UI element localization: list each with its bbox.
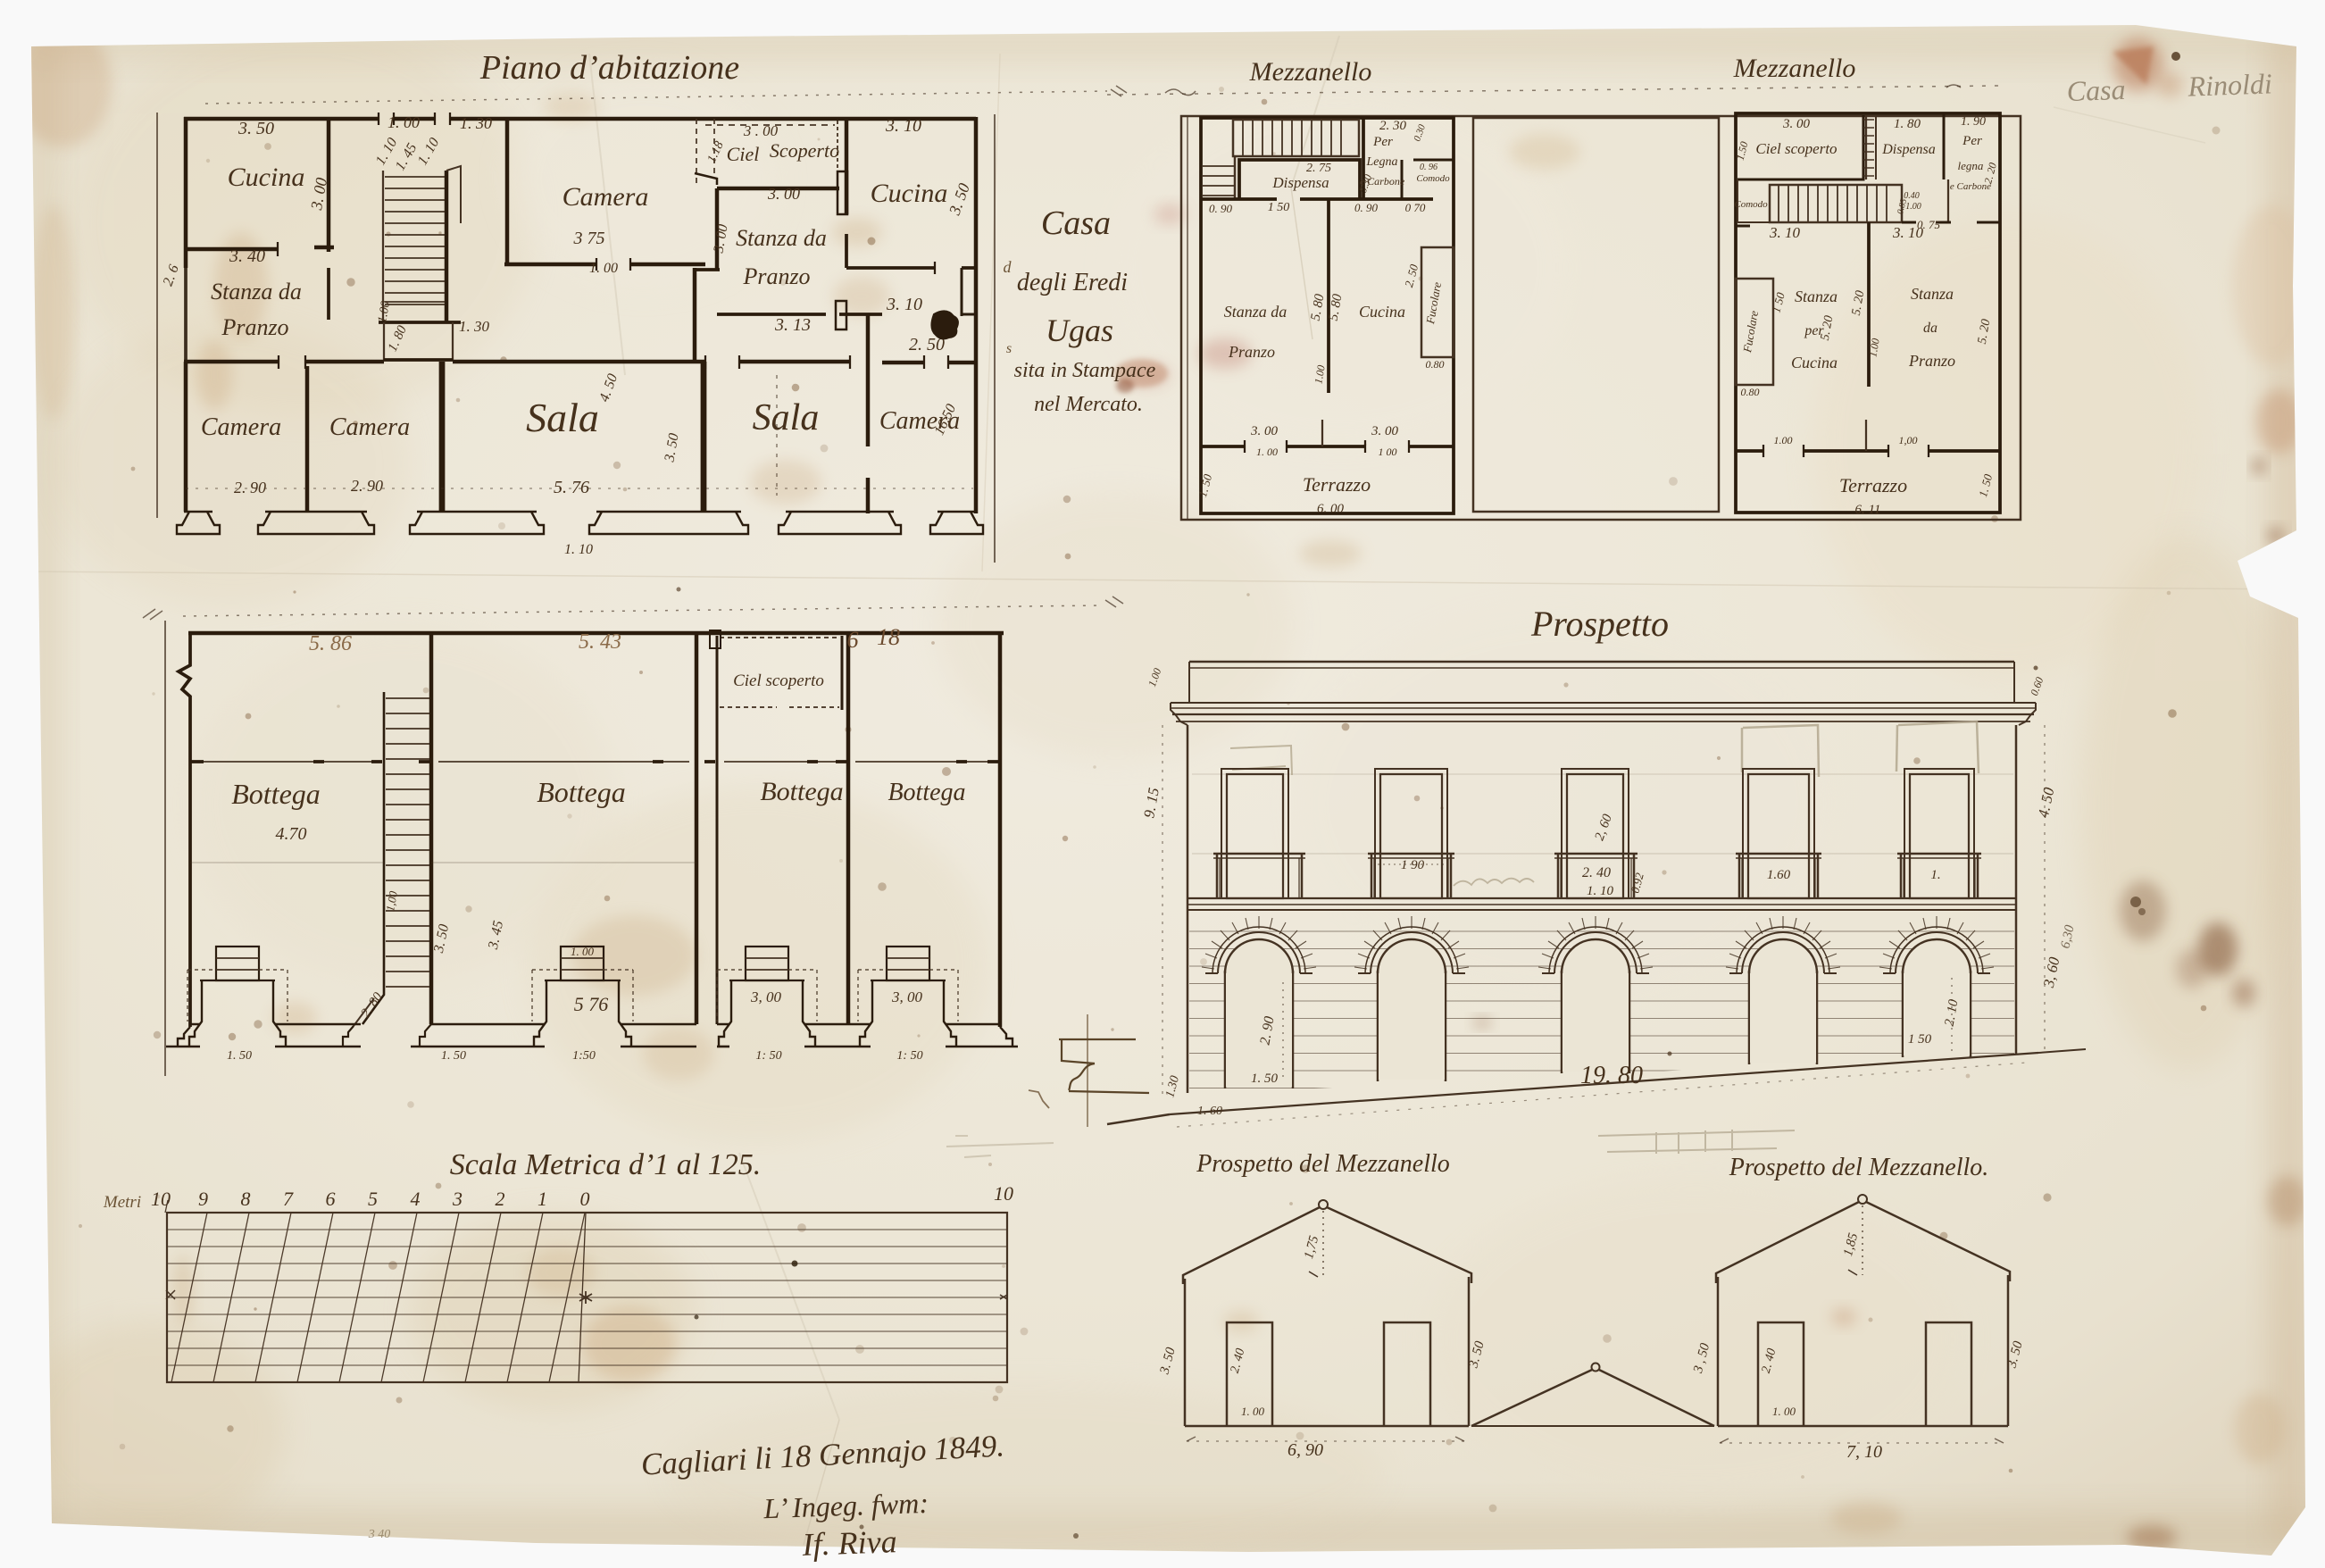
svg-text:1. 50: 1. 50 [441, 1049, 466, 1063]
svg-text:1. 30: 1. 30 [459, 318, 490, 335]
svg-text:5. 86: 5. 86 [309, 632, 352, 655]
svg-text:3. 00: 3. 00 [1250, 424, 1279, 438]
svg-text:3 40: 3 40 [368, 1528, 391, 1541]
svg-text:Prospetto del Mezzanello: Prospetto del Mezzanello [1196, 1150, 1450, 1178]
svg-text:Scoperto: Scoperto [770, 139, 839, 162]
svg-text:Bottega: Bottega [760, 777, 843, 806]
svg-text:Bottega: Bottega [887, 779, 965, 806]
svg-text:1. 50: 1. 50 [1251, 1072, 1279, 1086]
svg-text:18: 18 [877, 624, 900, 650]
svg-text:2. 75: 2. 75 [1306, 162, 1331, 175]
svg-text:Stanza: Stanza [1911, 285, 1954, 303]
svg-text:3. 10: 3. 10 [1892, 224, 1924, 241]
svg-text:1. 10: 1. 10 [564, 542, 593, 557]
svg-text:s: s [1006, 341, 1012, 356]
svg-text:3. 10: 3. 10 [885, 116, 921, 136]
svg-text:Terrazzo: Terrazzo [1303, 473, 1371, 496]
svg-text:1.60: 1.60 [1767, 868, 1791, 882]
svg-text:1. 00: 1. 00 [1241, 1405, 1265, 1418]
svg-text:3. 10: 3. 10 [1769, 224, 1801, 241]
svg-text:1:50: 1:50 [572, 1049, 596, 1063]
svg-text:2: 2 [496, 1188, 505, 1210]
svg-text:6. 11: 6. 11 [1855, 503, 1881, 517]
svg-text:1 00: 1 00 [1379, 446, 1397, 458]
svg-text:Sala: Sala [753, 397, 820, 438]
svg-text:1 50: 1 50 [1268, 201, 1290, 214]
svg-text:3, 00: 3, 00 [750, 988, 782, 1005]
svg-text:3. 00: 3. 00 [1782, 117, 1811, 131]
svg-text:Cucina: Cucina [1791, 354, 1837, 371]
svg-text:0.80: 0.80 [1741, 386, 1760, 398]
svg-text:1. 00: 1. 00 [589, 261, 618, 276]
svg-text:Legna: Legna [1366, 155, 1398, 169]
svg-text:Camera: Camera [562, 182, 649, 212]
svg-text:0.40: 0.40 [1904, 191, 1920, 201]
svg-text:Camera: Camera [201, 413, 281, 441]
svg-text:Prospetto del Mezzanello.: Prospetto del Mezzanello. [1729, 1154, 1989, 1181]
svg-text:L’ Ingeg. fwm:: L’ Ingeg. fwm: [762, 1487, 929, 1524]
svg-text:Cucina: Cucina [228, 163, 305, 192]
svg-text:19. 80: 19. 80 [1580, 1062, 1643, 1089]
svg-text:If. Riva: If. Riva [801, 1523, 897, 1563]
svg-text:degli Eredi: degli Eredi [1017, 269, 1128, 296]
svg-text:1. 00: 1. 00 [571, 945, 595, 958]
svg-text:Prospetto: Prospetto [1530, 604, 1669, 644]
svg-text:Cucina: Cucina [1359, 303, 1405, 321]
svg-text:2. 30: 2. 30 [1379, 119, 1407, 133]
svg-text:Ciel scoperto: Ciel scoperto [733, 671, 824, 690]
svg-text:5 76: 5 76 [574, 993, 609, 1015]
svg-text:8: 8 [241, 1188, 251, 1210]
svg-text:Pranzo: Pranzo [1908, 352, 1955, 370]
svg-text:10: 10 [151, 1188, 171, 1210]
svg-text:1 90: 1 90 [1401, 858, 1425, 872]
svg-text:Pranzo: Pranzo [1228, 343, 1275, 361]
svg-text:0 70: 0 70 [1405, 201, 1426, 214]
svg-text:6: 6 [847, 627, 859, 653]
svg-text:Bottega: Bottega [537, 776, 626, 808]
svg-text:2. 90: 2. 90 [234, 479, 266, 496]
svg-text:3 . 00: 3 . 00 [743, 122, 779, 139]
svg-text:Scala Metrica d’1 al 125.: Scala Metrica d’1 al 125. [450, 1148, 761, 1181]
svg-text:Stanza da: Stanza da [211, 279, 302, 304]
svg-text:3. 10: 3. 10 [886, 295, 922, 314]
svg-text:1. 00: 1. 00 [387, 113, 420, 131]
svg-text:9: 9 [198, 1188, 208, 1210]
svg-text:Mezzanello: Mezzanello [1733, 54, 1856, 83]
svg-text:0: 0 [580, 1188, 590, 1210]
svg-text:5. 76: 5. 76 [554, 478, 589, 497]
svg-text:1.00: 1.00 [1774, 434, 1793, 446]
svg-text:Dispensa: Dispensa [1271, 174, 1329, 191]
svg-text:Cucina: Cucina [871, 179, 948, 208]
svg-text:7: 7 [283, 1188, 294, 1210]
svg-text:1. 10: 1. 10 [1587, 884, 1614, 898]
svg-text:Casa: Casa [1041, 204, 1111, 242]
svg-text:4: 4 [411, 1188, 421, 1210]
svg-text:3. 00: 3. 00 [1371, 424, 1399, 438]
svg-text:d: d [1004, 258, 1012, 276]
svg-text:0. 96: 0. 96 [1420, 163, 1437, 172]
svg-text:Stanza da: Stanza da [1224, 303, 1287, 321]
svg-text:1. 50: 1. 50 [227, 1049, 252, 1063]
svg-text:1. 00: 1. 00 [1772, 1405, 1796, 1418]
svg-text:Ciel: Ciel [727, 143, 760, 165]
svg-text:Comodo: Comodo [1734, 199, 1768, 210]
svg-text:Sala: Sala [526, 395, 599, 440]
svg-text:5. 43: 5. 43 [579, 630, 621, 654]
svg-text:5: 5 [368, 1188, 378, 1210]
svg-text:Rinoldi: Rinoldi [2187, 67, 2272, 102]
svg-text:1. 30: 1. 30 [460, 114, 492, 132]
svg-text:7, 10: 7, 10 [1846, 1442, 1882, 1462]
svg-text:2. 40: 2. 40 [1582, 865, 1611, 880]
svg-text:Per: Per [1962, 134, 1982, 148]
svg-text:10: 10 [994, 1182, 1013, 1205]
svg-text:3 75: 3 75 [573, 229, 605, 248]
svg-text:e Carbone: e Carbone [1360, 175, 1405, 188]
svg-text:Ciel scoperto: Ciel scoperto [1755, 140, 1837, 157]
svg-text:1. 90: 1. 90 [1961, 115, 1986, 129]
svg-text:3. 50: 3. 50 [237, 119, 274, 138]
svg-text:0. 90: 0. 90 [1209, 202, 1233, 215]
svg-text:legna: legna [1958, 159, 1984, 172]
svg-text:1: 50: 1: 50 [755, 1049, 781, 1063]
svg-text:Ugas: Ugas [1046, 313, 1113, 348]
svg-text:Comodo: Comodo [1416, 173, 1450, 184]
svg-text:Camera: Camera [329, 413, 410, 441]
svg-text:Dispensa: Dispensa [1881, 142, 1936, 157]
svg-text:Mezzanello: Mezzanello [1249, 57, 1372, 87]
svg-text:Stanza da: Stanza da [736, 225, 827, 251]
svg-text:0.80: 0.80 [1426, 358, 1445, 371]
svg-text:1: 1 [537, 1188, 547, 1210]
svg-text:1. 80: 1. 80 [1894, 117, 1921, 131]
svg-text:3. 13: 3. 13 [774, 315, 811, 335]
svg-text:6: 6 [326, 1188, 336, 1210]
svg-text:2. 90: 2. 90 [351, 477, 383, 495]
svg-text:Pranzo: Pranzo [742, 263, 810, 289]
svg-text:Metri: Metri [103, 1193, 141, 1212]
svg-text:6. 00: 6. 00 [1317, 502, 1345, 516]
svg-text:Pranzo: Pranzo [221, 314, 288, 340]
svg-text:1,00: 1,00 [1899, 434, 1918, 446]
svg-text:3. 40: 3. 40 [229, 246, 265, 266]
svg-text:sita in Stampace: sita in Stampace [1014, 359, 1156, 382]
svg-text:1: 50: 1: 50 [896, 1049, 922, 1063]
svg-text:3: 3 [452, 1188, 462, 1210]
svg-text:0. 90: 0. 90 [1354, 201, 1379, 214]
svg-text:4.70: 4.70 [276, 824, 307, 844]
svg-text:da: da [1923, 321, 1937, 336]
svg-text:Terrazzo: Terrazzo [1839, 474, 1907, 496]
svg-text:3. 00: 3. 00 [767, 185, 800, 203]
svg-text:6, 90: 6, 90 [1287, 1440, 1323, 1460]
svg-text:Piano d’abitazione: Piano d’abitazione [479, 49, 739, 87]
svg-text:1 50: 1 50 [1908, 1032, 1932, 1047]
svg-text:Casa: Casa [2066, 73, 2126, 107]
svg-text:Stanza: Stanza [1795, 288, 1837, 305]
svg-text:1. 60: 1. 60 [1197, 1105, 1222, 1118]
svg-text:nel Mercato.: nel Mercato. [1034, 393, 1143, 416]
svg-text:Per: Per [1372, 135, 1393, 149]
svg-text:3, 00: 3, 00 [891, 988, 923, 1005]
svg-text:1. 00: 1. 00 [1256, 446, 1278, 458]
svg-text:Bottega: Bottega [231, 778, 321, 810]
svg-text:1.: 1. [1930, 868, 1940, 882]
